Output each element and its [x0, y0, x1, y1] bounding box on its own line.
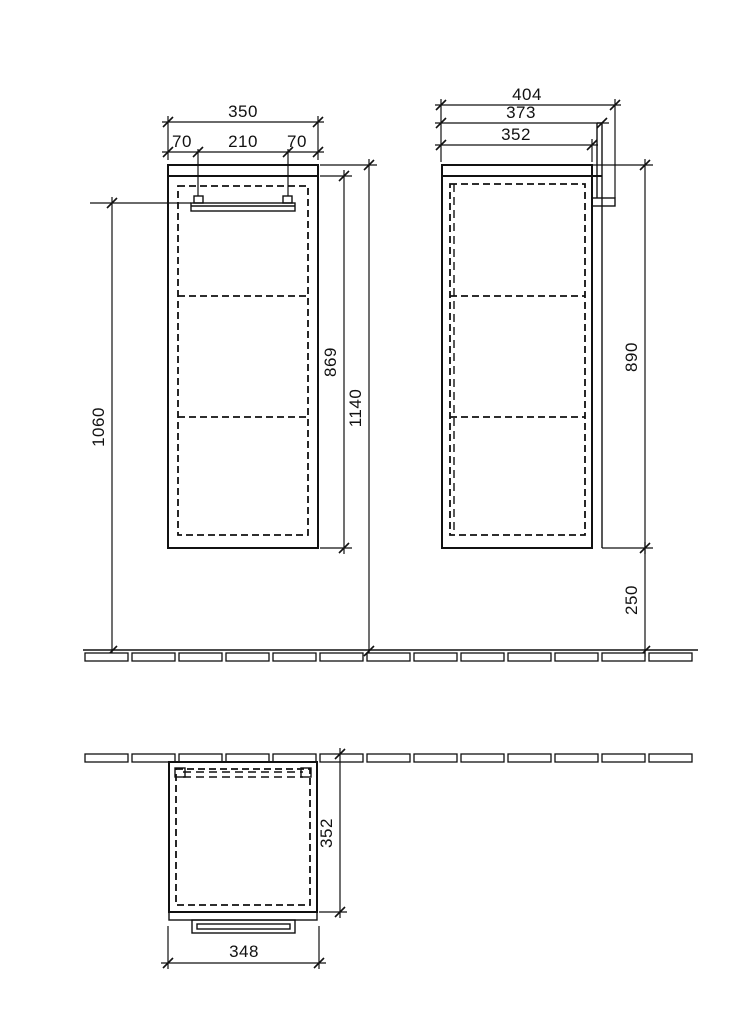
top-dimensions: 352 348	[161, 748, 347, 969]
dim-label-890: 890	[622, 342, 641, 372]
dim-label-250: 250	[622, 585, 641, 615]
top-body-outline	[169, 762, 317, 912]
dim-front-handle-height: 1060	[89, 197, 191, 657]
floor-line	[83, 650, 698, 661]
dim-side-body-height: 890	[592, 159, 653, 554]
top-interior-hidden-outline	[176, 769, 310, 905]
dim-label-352-top: 352	[317, 818, 336, 848]
dim-front-handle-offsets: 70 210 70	[162, 132, 324, 157]
dim-front-total-height: 1140	[320, 159, 377, 657]
front-view	[168, 165, 318, 548]
dim-label-348: 348	[229, 942, 259, 961]
dim-side-bottom-clearance: 250	[622, 542, 650, 657]
side-interior-hidden-outline	[450, 184, 585, 535]
dim-label-373: 373	[506, 103, 536, 122]
dim-label-869: 869	[321, 347, 340, 377]
dim-side-body-depth: 352	[435, 125, 598, 150]
technical-drawing-canvas: 350 70 210 70 1060 869	[0, 0, 737, 1030]
front-handle-mount-right	[283, 196, 292, 203]
dim-label-70-left: 70	[172, 132, 192, 151]
front-door-hidden-outline	[178, 186, 308, 535]
drawing-svg: 350 70 210 70 1060 869	[0, 0, 737, 1030]
top-handle-inner	[197, 924, 290, 929]
dim-top-body-depth: 352	[317, 748, 347, 918]
dim-label-70-right: 70	[287, 132, 307, 151]
top-door-panel	[169, 912, 317, 920]
dim-label-404: 404	[512, 85, 542, 104]
front-handle-bar	[191, 203, 295, 211]
side-wall-rail-foot	[592, 198, 615, 206]
top-handle-outer	[192, 920, 295, 933]
dim-front-body-height: 869	[320, 170, 352, 554]
side-dimensions: 404 373 352 890 250	[435, 85, 653, 657]
dim-label-210: 210	[228, 132, 258, 151]
front-body-outline	[168, 165, 318, 548]
side-view	[442, 123, 615, 548]
dim-label-1140: 1140	[346, 389, 365, 428]
dim-front-total-width: 350	[162, 102, 324, 127]
top-view	[169, 762, 317, 933]
dim-label-1060: 1060	[89, 407, 108, 447]
side-body-outline	[442, 165, 592, 548]
dim-label-352-side: 352	[501, 125, 531, 144]
wall-line-plan	[85, 754, 692, 762]
dim-label-350: 350	[228, 102, 258, 121]
front-handle-mount-left	[194, 196, 203, 203]
